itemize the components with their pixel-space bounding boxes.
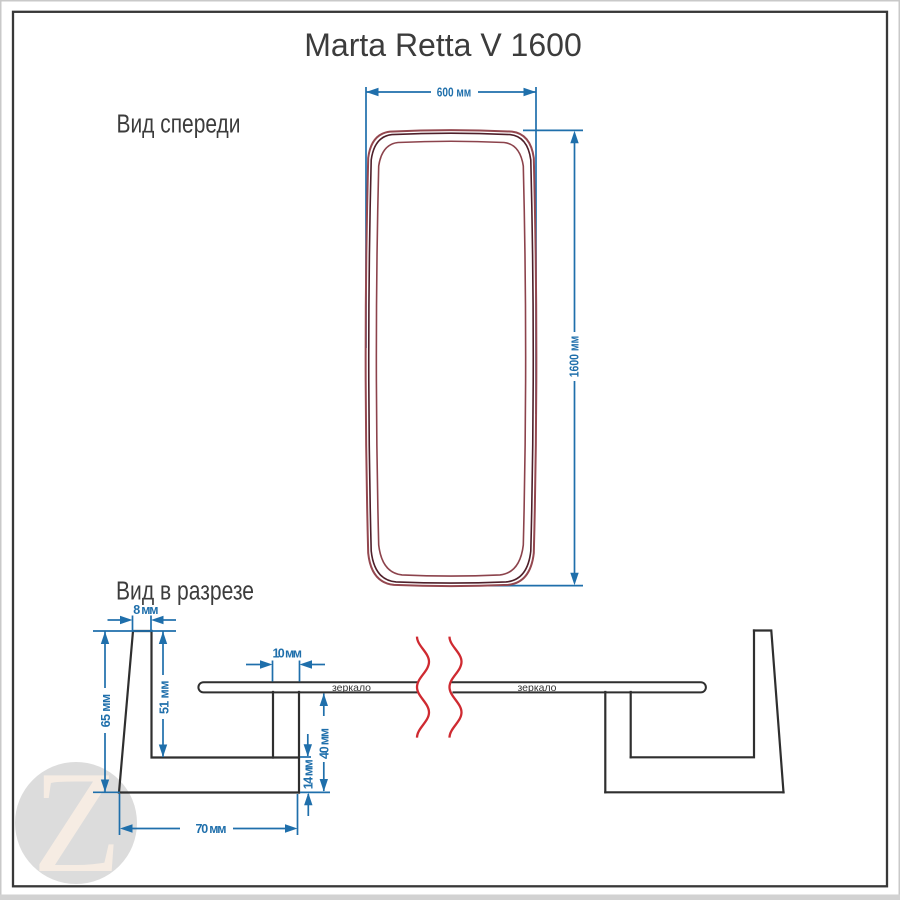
svg-text:14 мм: 14 мм — [302, 759, 316, 789]
svg-text:40 мм: 40 мм — [318, 728, 332, 759]
svg-text:65 мм: 65 мм — [99, 694, 113, 728]
svg-text:Marta Retta V 1600: Marta Retta V 1600 — [304, 27, 581, 63]
svg-text:Вид спереди: Вид спереди — [117, 111, 241, 139]
svg-text:8 мм: 8 мм — [133, 603, 158, 617]
svg-text:51 мм: 51 мм — [158, 681, 172, 715]
svg-text:1600 мм: 1600 мм — [568, 336, 582, 378]
svg-text:Вид в разрезе: Вид в разрезе — [116, 578, 254, 606]
svg-text:зеркало: зеркало — [518, 683, 557, 694]
svg-text:зеркало: зеркало — [332, 683, 371, 694]
svg-text:Z: Z — [32, 741, 121, 900]
svg-text:10 мм: 10 мм — [272, 647, 302, 661]
svg-text:70 мм: 70 мм — [196, 822, 227, 836]
svg-text:600 мм: 600 мм — [437, 86, 472, 100]
